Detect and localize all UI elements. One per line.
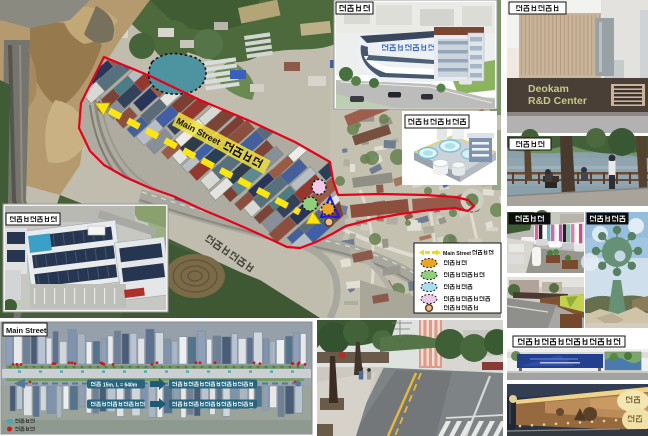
svg-text:R&D Center: R&D Center [528, 95, 587, 107]
svg-text:Deokam: Deokam [528, 83, 569, 95]
svg-text:Main Street: Main Street [443, 251, 471, 257]
svg-text:Main Street: Main Street [6, 326, 47, 335]
svg-text:15m, L = 640m: 15m, L = 640m [103, 382, 138, 388]
